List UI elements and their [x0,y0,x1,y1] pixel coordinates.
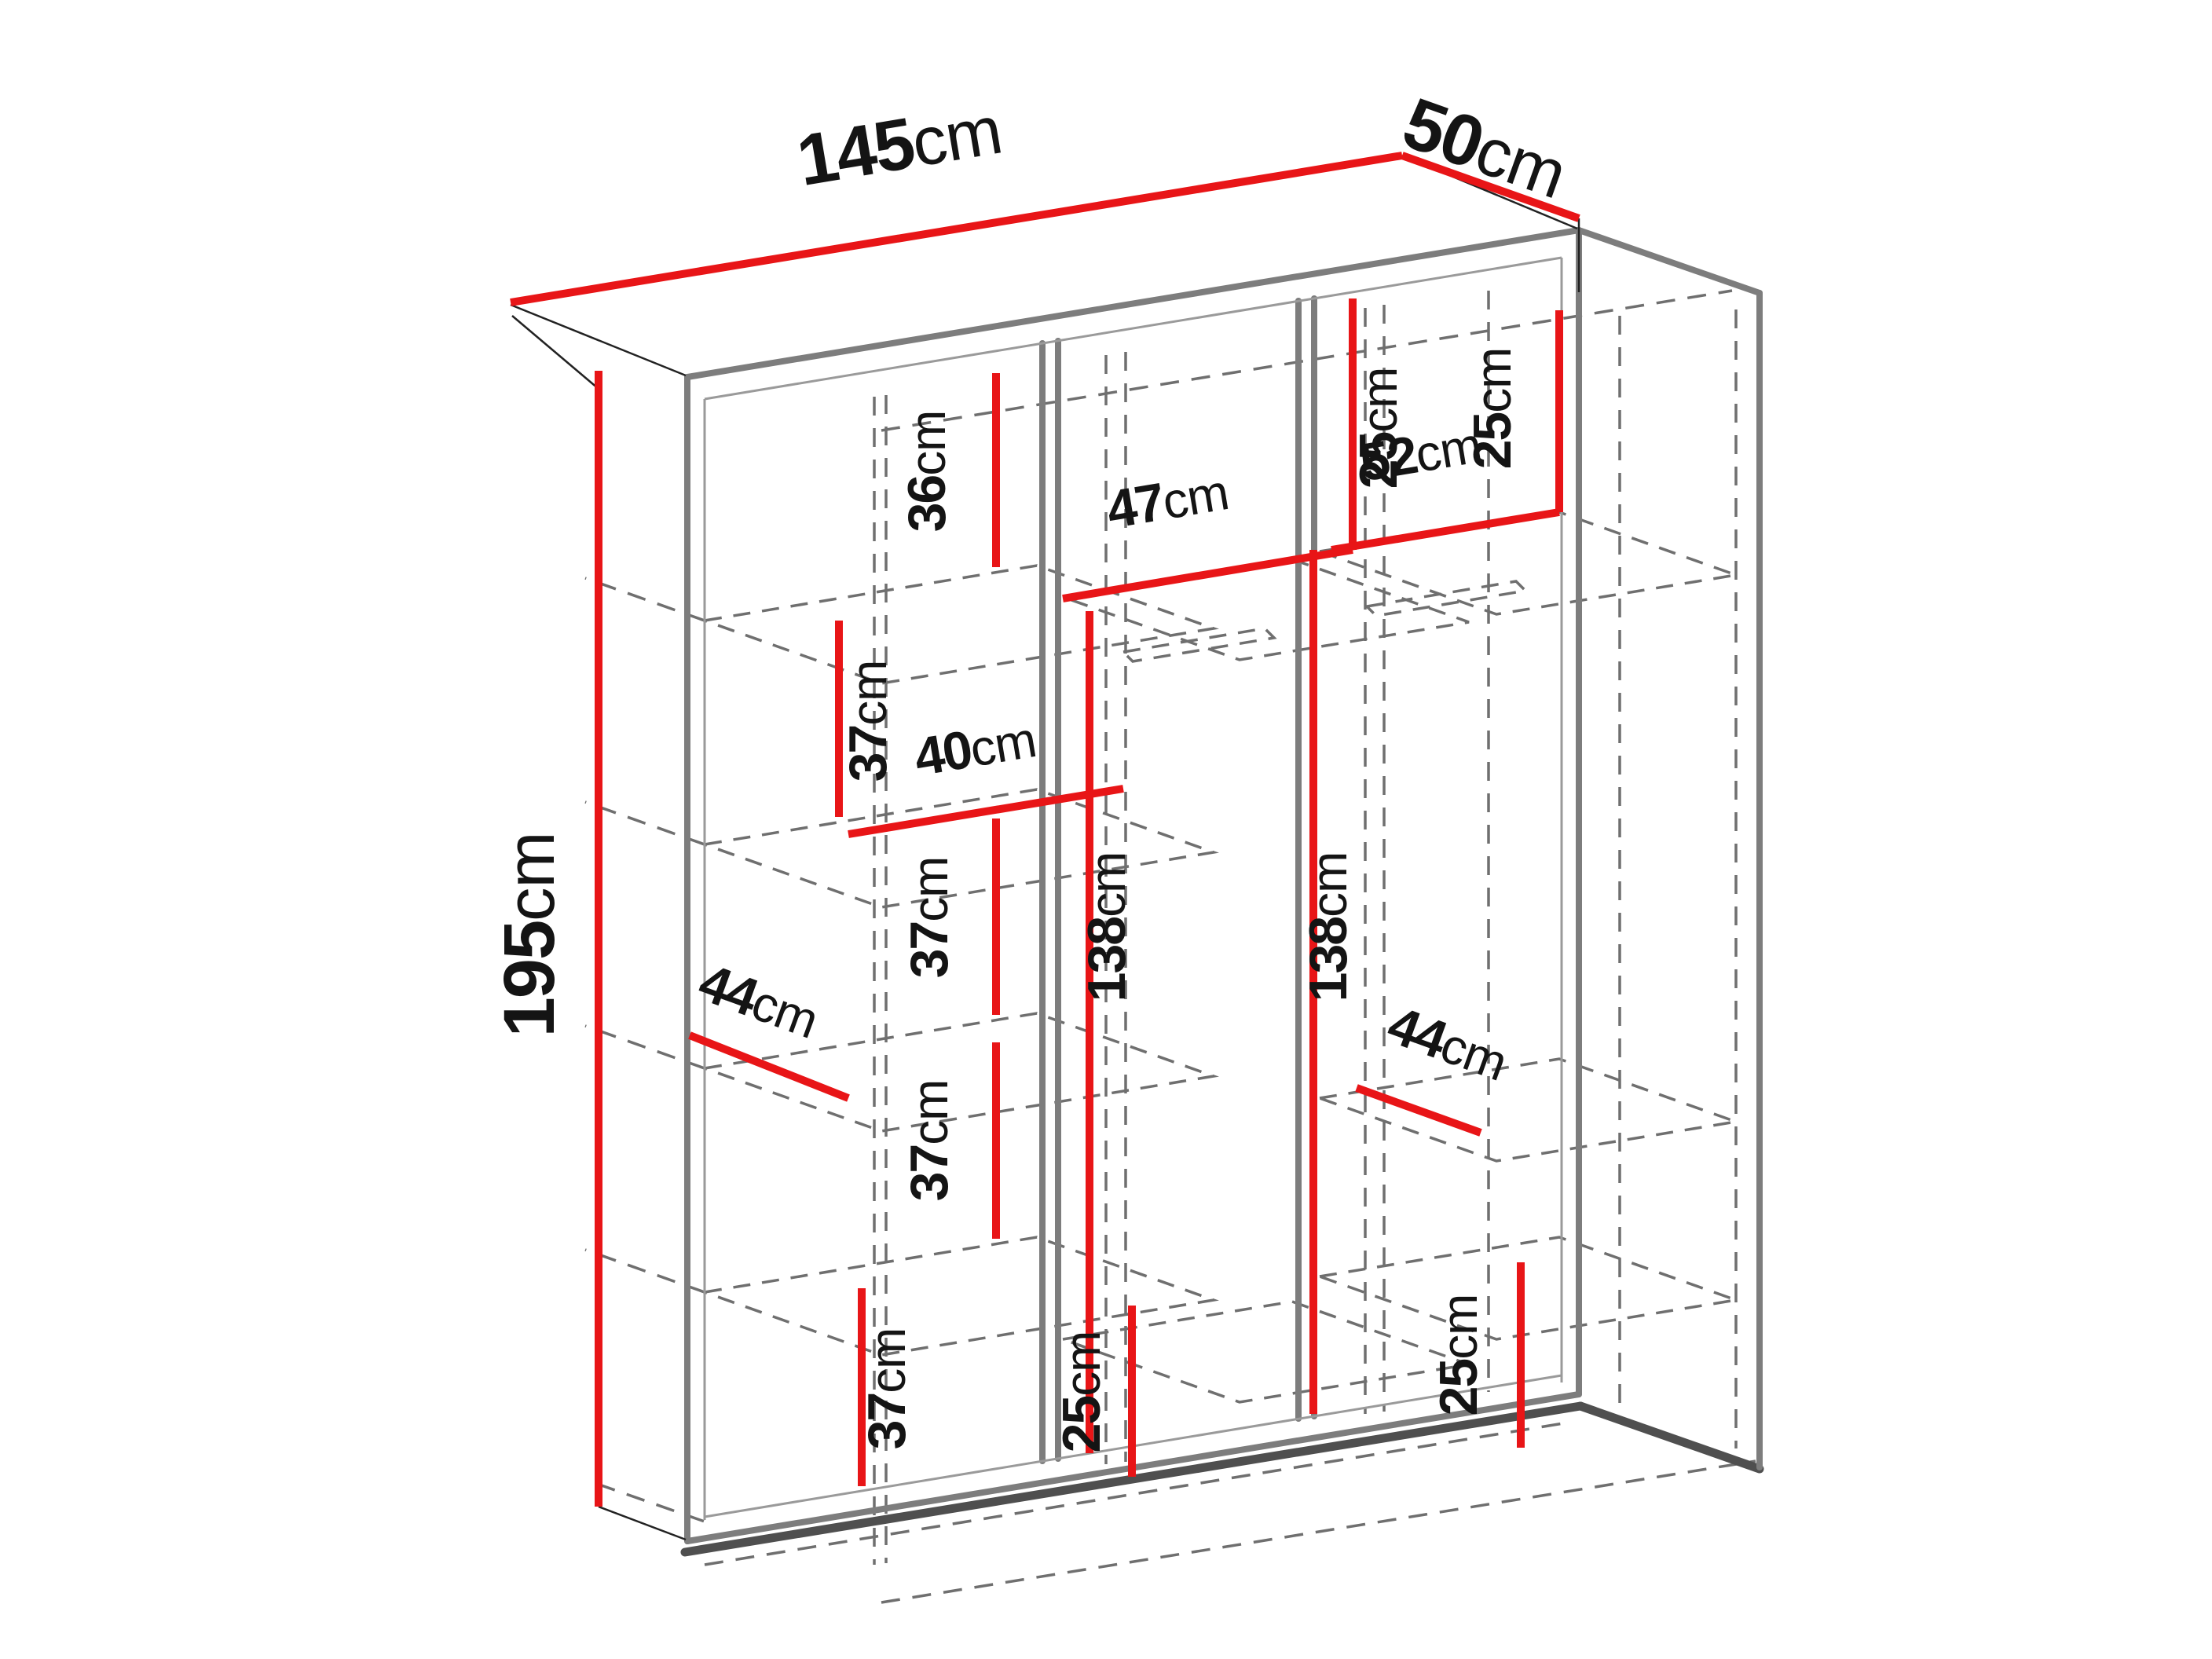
dimension-label-left-37-b: 37cm [899,857,959,979]
dimension-unit: cm [1301,852,1357,917]
dimension-unit: cm [899,411,956,476]
dimension-unit: cm [902,857,958,922]
dimension-unit: cm [840,661,897,726]
dimension-value: 47 [1103,472,1168,540]
dimension-line-right-depth-44 [1357,1088,1481,1133]
shelf-dashed-outline [1063,559,1469,660]
dimension-label-right-bottom-25: 25cm [1429,1295,1489,1416]
dimension-value: 37 [899,922,959,979]
dimension-unit: cm [906,93,1007,181]
shelf-dashed-outline [1320,512,1736,614]
hidden-edge-dashed-line [881,291,1732,430]
dimension-unit: cm [1431,1295,1488,1360]
dimension-value: 25 [1052,1397,1111,1453]
dimension-label-width: 145cm [792,89,1007,202]
shelf-dashed-outline [1320,1237,1736,1339]
dimension-unit: cm [859,1328,916,1393]
dimension-label-left-top-36: 36cm [897,411,957,533]
dimension-line-left-width-40 [848,789,1123,834]
dimension-label-left-bottom-37: 37cm [857,1328,917,1450]
dimension-label-left-depth-44: 44cm [691,952,826,1049]
witness-line [512,316,599,389]
dimension-value: 37 [857,1393,917,1450]
dimension-value: 145 [792,103,919,201]
dimension-label-mid-bottom-25: 25cm [1052,1331,1111,1453]
dimension-value: 25 [1463,413,1522,470]
cabinet-edge [1579,230,1760,293]
dimension-value: 195 [489,921,569,1038]
cabinet-inner-edge [705,258,1562,399]
dimension-value: 36 [897,476,957,533]
dimension-label-mid-width-47: 47cm [1103,461,1232,540]
dimension-value: 37 [838,726,898,782]
dimension-unit: cm [966,711,1040,778]
dimension-label-left-37-a: 37cm [838,661,898,782]
dimension-label-height: 195cm [489,833,569,1038]
dimension-value: 40 [910,720,976,788]
shelf-dashed-outline [1320,1059,1736,1161]
shelf-dashed-outline [1123,628,1274,661]
dimension-value: 138 [1077,917,1137,1002]
diagram-stage: 145cm50cm195cm36cm37cm40cm37cm44cm37cm37… [0,0,2212,1659]
dimension-unit: cm [1079,852,1136,917]
dimension-unit: cm [1351,368,1408,433]
dimension-unit: cm [902,1080,958,1145]
dimension-label-left-width-40: 40cm [910,709,1040,788]
dimension-value: 25 [1429,1360,1489,1416]
shelf-dashed-outline [705,1237,1214,1355]
dimension-unit: cm [1159,463,1232,530]
dimension-label-depth: 50cm [1393,82,1577,214]
dimension-label-right-hang-138: 138cm [1298,852,1358,1002]
dimension-unit: cm [1054,1331,1111,1397]
shelf-dashed-outline [1367,581,1525,616]
shelf-dashed-outline [705,789,1214,907]
wardrobe-dimension-diagram: 145cm50cm195cm36cm37cm40cm37cm44cm37cm37… [0,0,2212,1659]
dimension-value: 138 [1298,917,1358,1002]
dimension-label-mid-hang-138: 138cm [1077,852,1137,1002]
hidden-edge-dashed-line [881,1461,1756,1602]
cabinet-structure [685,230,1760,1552]
dimension-labels: 145cm50cm195cm36cm37cm40cm37cm44cm37cm37… [489,82,1577,1452]
dimension-unit: cm [1465,348,1522,413]
dimension-label-left-37-c: 37cm [899,1080,959,1202]
dimension-label-right-top-25: 25cm [1463,348,1522,470]
cabinet-shadow-edge [1580,1406,1760,1469]
dimension-unit: cm [493,833,569,921]
shelf-dashed-outline [1063,1302,1469,1402]
witness-line [511,305,686,375]
dimension-value: 37 [899,1145,959,1202]
dimension-value: 52 [1356,425,1421,493]
